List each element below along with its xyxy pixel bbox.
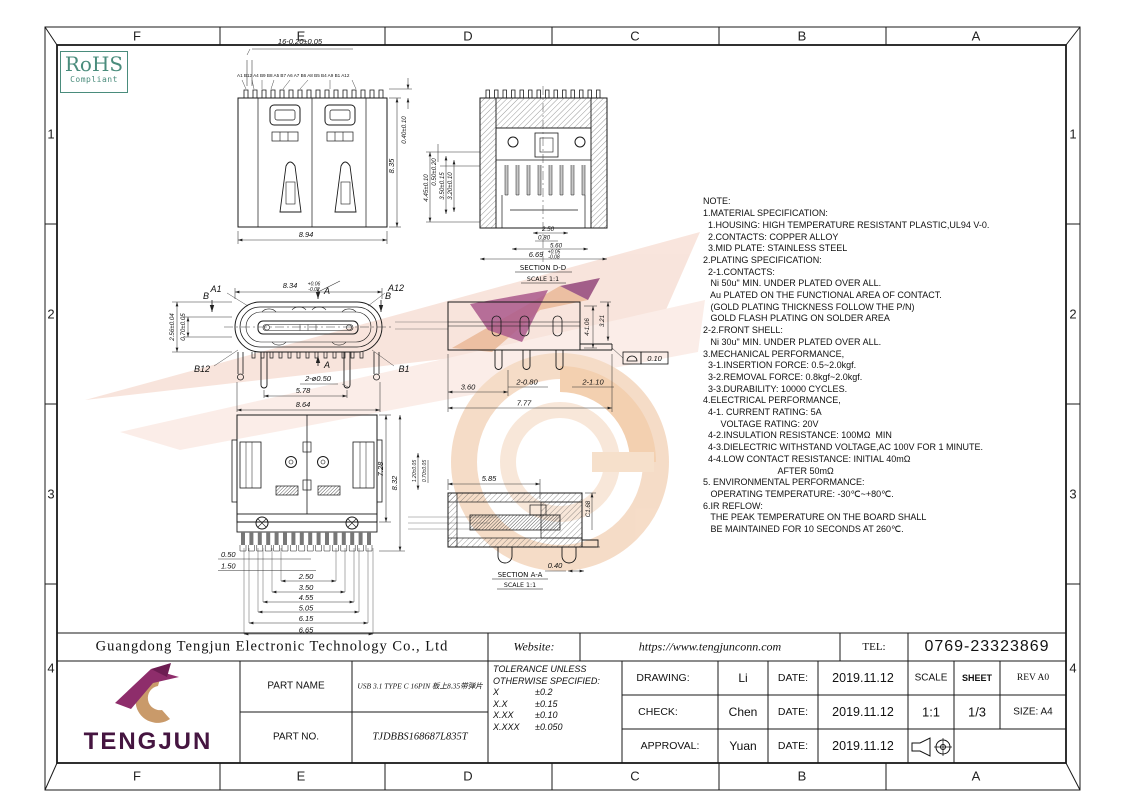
dim-350: 3.50±0.15 (439, 172, 446, 200)
tengjun-logo-mark (115, 663, 179, 723)
view-section-dd-dims (426, 144, 607, 283)
scale-value: 1:1 (922, 705, 940, 720)
rev-label: REV A0 (1017, 673, 1049, 683)
sheet-label: SHEET (962, 673, 992, 683)
drawing-sheet: 16-0.20±0.05 A1 B12 A4 B9 B8 A5 B7 A6 A7… (0, 0, 1123, 793)
note-line: 2-2.FRONT SHELL: (703, 325, 989, 337)
dim-050-020: 0.50±0.20 (431, 158, 438, 186)
dim-2-dia-050: 2-ø0.50 (304, 374, 332, 383)
note-line: Ni 50u" MIN. UNDER PLATED OVER ALL. (703, 278, 989, 290)
dim-894: 8.94 (299, 230, 314, 239)
dim-c168: C1.68 (585, 500, 592, 517)
zone-col-b-top: B (798, 29, 807, 44)
section-a-arrow-bottom: A (323, 360, 330, 370)
note-line: AFTER 50mΩ (703, 466, 989, 478)
rohs-subtitle: Compliant (61, 75, 127, 84)
section-a-arrow-top: A (323, 286, 330, 296)
tel-number: 0769-23323869 (924, 638, 1049, 656)
dim-040: 0.40±0.10 (401, 116, 408, 144)
section-aa-scale: SCALE 1:1 (504, 582, 536, 589)
scale-label: SCALE (915, 673, 948, 684)
dim-834: 8.34 (283, 281, 298, 290)
section-dd-scale: SCALE 1:1 (527, 276, 559, 283)
part-no-label: PART NO. (273, 732, 319, 743)
rohs-badge: RoHS Compliant (60, 51, 128, 93)
note-line: 3-2.REMOVAL FORCE: 0.8kgf~2.0kgf. (703, 372, 989, 384)
approval-date-label: DATE: (778, 740, 808, 752)
dim-c615: 6.15 (299, 614, 314, 623)
part-name-label: PART NAME (267, 681, 324, 692)
approval-name: Yuan (729, 739, 756, 753)
zone-col-e-top: E (297, 29, 306, 44)
tolerance-block: TOLERANCE UNLESS OTHERWISE SPECIFIED: X±… (493, 664, 619, 733)
note-line: 1.HOUSING: HIGH TEMPERATURE RESISTANT PL… (703, 220, 989, 232)
note-line: 2.PLATING SPECIFICATION: (703, 255, 989, 267)
tolerance-row-x: X±0.2 (493, 687, 619, 699)
dim-070: 0.70±0.05 (180, 313, 187, 341)
dim-585: 5.85 (482, 474, 497, 483)
dim-c350: 3.50 (299, 583, 314, 592)
dim-070b: 0.70±0.05 (422, 460, 428, 482)
dim-728: 7.28 (376, 461, 385, 476)
note-line: 2-1.CONTACTS: (703, 267, 989, 279)
dim-040b: 0.40 (548, 561, 563, 570)
dim-669-tol-minus: -0.08 (548, 255, 560, 261)
zone-col-a-bottom: A (972, 769, 981, 784)
note-line: VOLTAGE RATING: 20V (703, 419, 989, 431)
note-line: 4-1. CURRENT RATING: 5A (703, 407, 989, 419)
section-b-arrow-right: B (385, 291, 391, 301)
tel-label: TEL: (862, 641, 885, 653)
dim-2-080: 2-0.80 (515, 378, 538, 387)
zone-row-2-left: 2 (47, 307, 54, 322)
dim-c150: 1.50 (221, 562, 236, 571)
dim-320: 3.20±0.10 (447, 172, 454, 200)
dim-256: 2.56±0.04 (169, 313, 176, 342)
view-top-plan-dims (238, 49, 412, 244)
drawing-name: Li (738, 671, 747, 685)
note-line: 5. ENVIRONMENTAL PERFORMANCE: (703, 477, 989, 489)
notes-block: NOTE:1.MATERIAL SPECIFICATION: 1.HOUSING… (703, 173, 989, 548)
dim-c455: 4.55 (299, 593, 314, 602)
dim-835: 8.35 (387, 158, 396, 173)
dim-c505: 5.05 (299, 604, 314, 613)
zone-row-2-right: 2 (1069, 307, 1076, 322)
company-name: Guangdong Tengjun Electronic Technology … (96, 639, 449, 656)
dim-445: 4.45±0.10 (423, 174, 430, 202)
view-top-plan (238, 80, 387, 227)
view-bottom-plan-dims (218, 415, 428, 634)
label-b1: B1 (398, 364, 409, 374)
note-line: 3.MECHANICAL PERFORMANCE, (703, 349, 989, 361)
tolerance-title-1: TOLERANCE UNLESS (493, 664, 619, 676)
zone-row-3-right: 3 (1069, 487, 1076, 502)
note-line: (GOLD PLATING THICKNESS FOLLOW THE P/N) (703, 302, 989, 314)
zone-row-3-left: 3 (47, 487, 54, 502)
tolerance-row-xxxx: X.XXX±0.050 (493, 722, 619, 734)
label-a1: A1 (209, 284, 221, 294)
website-label: Website: (514, 640, 555, 655)
third-angle-projection-icon (910, 737, 954, 757)
dim-250: 2.50 (541, 226, 555, 233)
dim-777: 7.77 (517, 399, 532, 408)
dim-c250: 2.50 (298, 572, 314, 581)
note-line: NOTE: (703, 196, 989, 208)
note-line: 4-3.DIELECTRIC WITHSTAND VOLTAGE,AC 100V… (703, 442, 989, 454)
notes-lines: NOTE:1.MATERIAL SPECIFICATION: 1.HOUSING… (703, 196, 989, 535)
part-no-value: TJDBBS168687L835T (372, 732, 467, 743)
check-date-label: DATE: (778, 706, 808, 718)
note-line: Ni 30u" MIN. UNDER PLATED OVER ALL. (703, 337, 989, 349)
size-value: SIZE: A4 (1013, 707, 1052, 718)
dim-669: 6.69 (529, 250, 544, 259)
zone-col-f-top: F (133, 29, 141, 44)
zone-col-c-top: C (630, 29, 639, 44)
rohs-title: RoHS (61, 53, 127, 75)
zone-col-c-bottom: C (630, 769, 639, 784)
tolerance-row-xxx: X.XX±0.10 (493, 710, 619, 722)
check-date: 2019.11.12 (832, 705, 894, 719)
zone-col-b-bottom: B (798, 769, 807, 784)
zone-row-4-right: 4 (1069, 661, 1076, 676)
logo-wordmark: TENGJUN (84, 728, 213, 755)
zone-col-d-top: D (463, 29, 472, 44)
dim-080: 0.80 (538, 235, 551, 242)
note-line: GOLD FLASH PLATING ON SOLDER AREA (703, 313, 989, 325)
dim-560: 5.60 (550, 243, 563, 250)
dim-120: 1.20±0.05 (412, 460, 418, 482)
section-dd-label: SECTION D-D (520, 264, 566, 272)
note-line: 4-4.LOW CONTACT RESISTANCE: INITIAL 40mΩ (703, 454, 989, 466)
note-line: 4.ELECTRICAL PERFORMANCE, (703, 395, 989, 407)
note-line: 1.MATERIAL SPECIFICATION: (703, 208, 989, 220)
dim-2-110: 2-1.10 (581, 378, 604, 387)
note-line: 6.IR REFLOW: (703, 501, 989, 513)
note-line: 3.MID PLATE: STAINLESS STEEL (703, 243, 989, 255)
zone-row-1-left: 1 (47, 127, 54, 142)
note-line: BE MAINTAINED FOR 10 SECONDS AT 260℃. (703, 524, 989, 536)
note-line: 3-1.INSERTION FORCE: 0.5~2.0kgf. (703, 360, 989, 372)
dim-834-tol-minus: -0.02 (308, 287, 320, 293)
check-label: CHECK: (638, 706, 678, 718)
dim-360: 3.60 (461, 383, 476, 392)
zone-row-1-right: 1 (1069, 127, 1076, 142)
dim-c665: 6.65 (299, 626, 314, 635)
zone-col-e-bottom: E (297, 769, 306, 784)
tolerance-row-xx: X.X±0.15 (493, 699, 619, 711)
approval-date: 2019.11.12 (832, 739, 894, 753)
company-logo: TENGJUN (57, 661, 240, 763)
dim-4-106: 4-1.06 (584, 318, 591, 336)
zone-col-d-bottom: D (463, 769, 472, 784)
drawing-date-label: DATE: (778, 672, 808, 684)
section-aa-label: SECTION A-A (498, 571, 543, 579)
drawing-date: 2019.11.12 (832, 671, 894, 685)
note-line: OPERATING TEMPERATURE: -30℃~+80℃. (703, 489, 989, 501)
zone-row-4-left: 4 (47, 661, 54, 676)
part-name-value: USB 3.1 TYPE C 16PIN 板上8.35带弹片 (357, 681, 482, 692)
gdt-value: 0.10 (647, 354, 662, 363)
dim-578: 5.78 (296, 386, 311, 395)
note-line: 2.CONTACTS: COPPER ALLOY (703, 232, 989, 244)
note-line: 3-3.DURABILITY: 10000 CYCLES. (703, 384, 989, 396)
tolerance-title-2: OTHERWISE SPECIFIED: (493, 676, 619, 688)
zone-col-a-top: A (972, 29, 981, 44)
note-line: 4-2.INSULATION RESISTANCE: 100MΩ MIN (703, 430, 989, 442)
check-name: Chen (729, 705, 758, 719)
dim-864: 8.64 (296, 400, 311, 409)
zone-col-f-bottom: F (133, 769, 141, 784)
website-url: https://www.tengjunconn.com (639, 640, 781, 655)
approval-label: APPROVAL: (641, 740, 700, 752)
sheet-value: 1/3 (968, 705, 986, 720)
label-b12: B12 (194, 364, 210, 374)
note-line: THE PEAK TEMPERATURE ON THE BOARD SHALL (703, 512, 989, 524)
dim-321: 3.21 (599, 315, 606, 327)
note-line: Au PLATED ON THE FUNCTIONAL AREA OF CONT… (703, 290, 989, 302)
drawing-label: DRAWING: (636, 672, 689, 684)
dim-c050: 0.50 (221, 550, 236, 559)
section-b-arrow-left: B (203, 291, 209, 301)
dim-832: 8.32 (390, 475, 399, 490)
pin-labels: A1 B12 A4 B9 B8 A5 B7 A6 A7 B6 A8 B5 B4 … (237, 73, 350, 78)
